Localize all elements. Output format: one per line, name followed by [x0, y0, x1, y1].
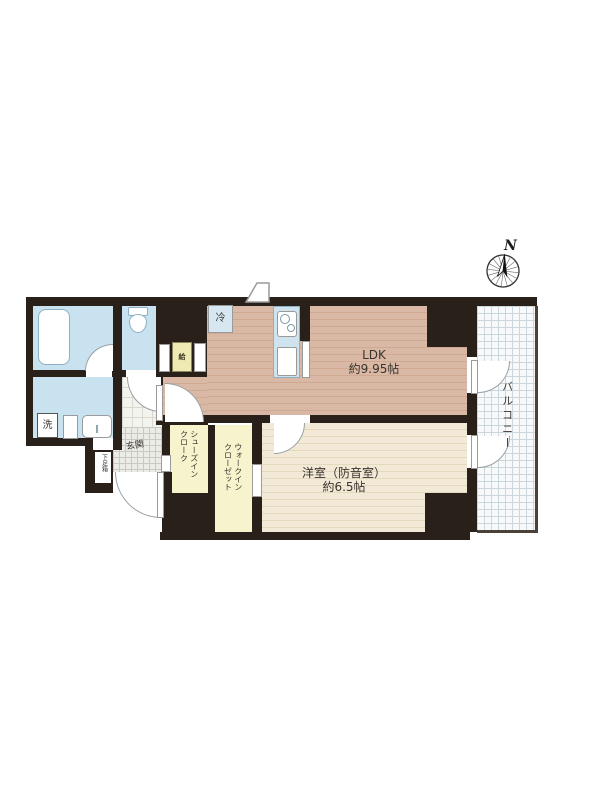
wall-washroom-bottom: [26, 438, 93, 446]
shoe-box: 下足箱: [93, 450, 113, 485]
wall-left: [26, 297, 33, 446]
wall-cloak-left-upper: [162, 425, 170, 455]
ldk-label: LDK 約9.95帖: [314, 349, 434, 377]
front-door-leaf: [157, 472, 164, 518]
wall-mid-column: [113, 297, 122, 450]
kitchen-burner-large: [280, 314, 290, 324]
laundry-space: 洗: [37, 413, 58, 438]
refrigerator: 冷: [208, 305, 233, 333]
balcony-door2-leaf: [471, 435, 478, 469]
kitchen-slide-panel: [302, 341, 310, 378]
kitchen-sink-bottom: [277, 347, 297, 376]
ldk-area: 約9.95帖: [314, 363, 434, 377]
compass-icon: [484, 252, 522, 290]
wall-right: [467, 306, 477, 532]
cloak-door-opening: [161, 455, 171, 472]
wall-wic-left: [208, 425, 215, 533]
wall-kitchen-stub: [300, 306, 310, 341]
western-room-area: 約6.5帖: [264, 481, 424, 495]
wall-bottom: [160, 532, 470, 540]
water-heater-label: 給: [179, 353, 186, 361]
walk-in-closet-line1: ウォークイン: [234, 443, 243, 491]
walk-in-closet-label: ウォークイン クローゼット: [216, 443, 250, 491]
western-room-name: 洋室（防音室）: [264, 467, 424, 481]
ldk-name: LDK: [314, 349, 434, 363]
meter-panel-left: [159, 344, 170, 372]
western-room-label: 洋室（防音室） 約6.5帖: [264, 467, 424, 495]
laundry-label: 洗: [43, 420, 53, 431]
shoe-box-label: 下足箱: [100, 454, 107, 472]
western-door-opening: [270, 415, 310, 423]
wic-opening: [252, 464, 262, 497]
walk-in-closet-line2: クローゼット: [223, 443, 232, 491]
meter-panel-right: [194, 343, 206, 372]
bay-window: [243, 280, 273, 304]
wall-top: [26, 297, 537, 306]
wall-block-top-right: [427, 306, 467, 347]
front-door-arc: [115, 472, 161, 518]
wall-ldk-west-divider: [208, 415, 470, 423]
hall-ldk-door-leaf: [156, 385, 163, 421]
bathroom-door-opening: [86, 370, 112, 377]
floorplan-page: 洗 冷 給 下足箱 N LD: [0, 0, 600, 800]
bathtub: [38, 309, 70, 365]
balcony-bottom-edge: [477, 530, 538, 533]
shoes-in-cloak-line1: シューズイン: [190, 430, 199, 478]
wall-step-bottom: [85, 485, 113, 493]
refrigerator-label: 冷: [216, 313, 226, 324]
toilet-door-opening: [126, 370, 156, 377]
balcony-door1-leaf: [471, 360, 478, 394]
balcony-right-edge: [535, 306, 538, 533]
kitchen-burner-small: [287, 324, 295, 332]
shoes-in-cloak-line2: クローク: [179, 430, 188, 478]
water-heater-box: 給: [172, 342, 192, 372]
wall-block-bottom-right: [425, 493, 470, 540]
balcony-label: バルコニー: [500, 381, 513, 451]
shoes-in-cloak-label: シューズイン クローク: [172, 430, 206, 478]
basin-faucet: [96, 425, 98, 433]
washroom-cabinet: [63, 415, 78, 439]
